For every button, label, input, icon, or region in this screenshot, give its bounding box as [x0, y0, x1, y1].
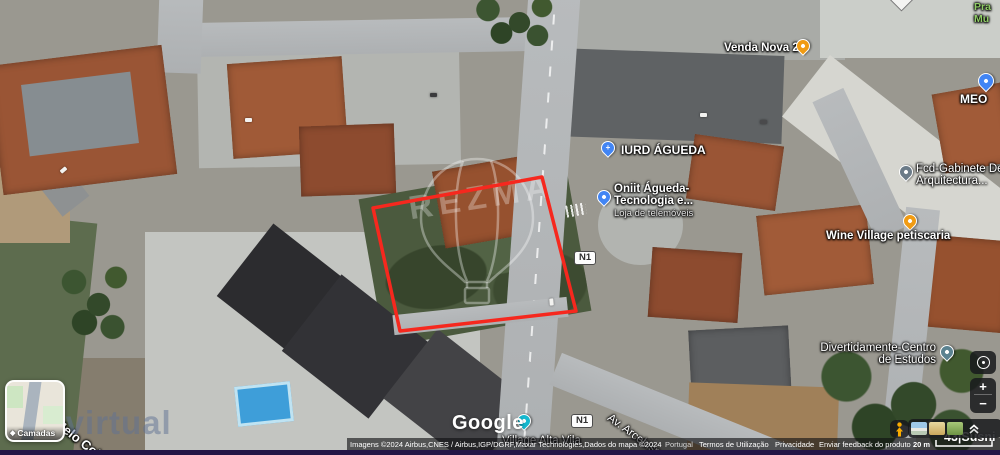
poi-label-wine-village: Wine Village petiscaria	[826, 230, 950, 242]
imagery-thumbnail-green[interactable]	[947, 422, 963, 435]
road-shield-n1-mid: N1	[574, 251, 596, 265]
pin-dot-icon	[944, 349, 950, 355]
pin-dot-icon	[800, 43, 806, 49]
poi-label-fcd-line1: Fcd-Gabinete De	[916, 163, 1000, 175]
collapse-chevron-icon[interactable]	[968, 423, 980, 435]
poi-label-venda-nova: Venda Nova 25	[724, 42, 805, 54]
google-logo[interactable]: Google	[452, 412, 524, 435]
poi-label-oniit-line2: Tecnologia e...	[614, 195, 693, 207]
pegman-button[interactable]	[890, 420, 909, 438]
imagery-thumbnail-sky[interactable]	[911, 422, 927, 435]
scale-text: 20 m	[913, 440, 930, 449]
property-boundary-polygon	[0, 0, 1000, 455]
privacy-link[interactable]: Privacidade	[775, 440, 814, 449]
attribution-imagery: Imagens ©2024 Airbus,CNES / Airbus,IGP/D…	[350, 440, 662, 449]
pin-dot-icon	[903, 169, 909, 175]
my-location-icon	[977, 356, 990, 369]
pin-dot-icon	[983, 78, 989, 84]
pegman-icon	[894, 422, 905, 437]
poi-label-meo: MEO	[960, 92, 987, 106]
map-viewport[interactable]: REZMA Pra Mu Venda Nova 25 MEO + IURD ÁG…	[0, 0, 1000, 455]
zoom-out-button[interactable]: −	[970, 395, 996, 411]
park-label-line1: Pra	[974, 1, 991, 13]
layers-icon: ◆	[10, 429, 15, 437]
layers-thumbnail-green	[5, 386, 23, 408]
poi-label-oniit-line1: Oniit Águeda-	[614, 183, 689, 195]
layers-label: Camadas	[17, 428, 55, 438]
park-label-line2: Mu	[974, 13, 989, 25]
terms-link[interactable]: Termos de Utilização	[699, 440, 769, 449]
feedback-link[interactable]: Enviar feedback do produto	[819, 440, 911, 449]
poi-label-fcd-line2: Arquitectura...	[916, 175, 988, 187]
my-location-button[interactable]	[970, 351, 996, 374]
church-cross-icon: +	[602, 142, 614, 154]
poi-label-divertidamente-line2: de Estudos	[790, 354, 936, 366]
pin-dot-icon	[601, 194, 607, 200]
attribution-bar: Imagens ©2024 Airbus,CNES / Airbus,IGP/D…	[347, 438, 1000, 450]
pin-dot-icon	[907, 218, 913, 224]
poi-label-oniit-line3: Loja de telemóveis	[614, 208, 693, 219]
attribution-region: Portugal	[665, 440, 693, 449]
poi-label-iurd: IURD ÁGUEDA	[621, 143, 706, 157]
road-shield-n1-bottom: N1	[571, 414, 593, 428]
zoom-in-button[interactable]: +	[970, 378, 996, 394]
zoom-control: + −	[970, 378, 996, 413]
layers-button[interactable]: ◆Camadas	[5, 380, 65, 442]
poi-label-divertidamente-line1: Divertidamente-Centro	[790, 342, 936, 354]
imagery-thumbnail-field[interactable]	[929, 422, 945, 435]
layers-thumbnail-green	[43, 406, 65, 424]
imagery-carousel	[908, 419, 1000, 438]
site-bottom-strip	[0, 450, 1000, 455]
